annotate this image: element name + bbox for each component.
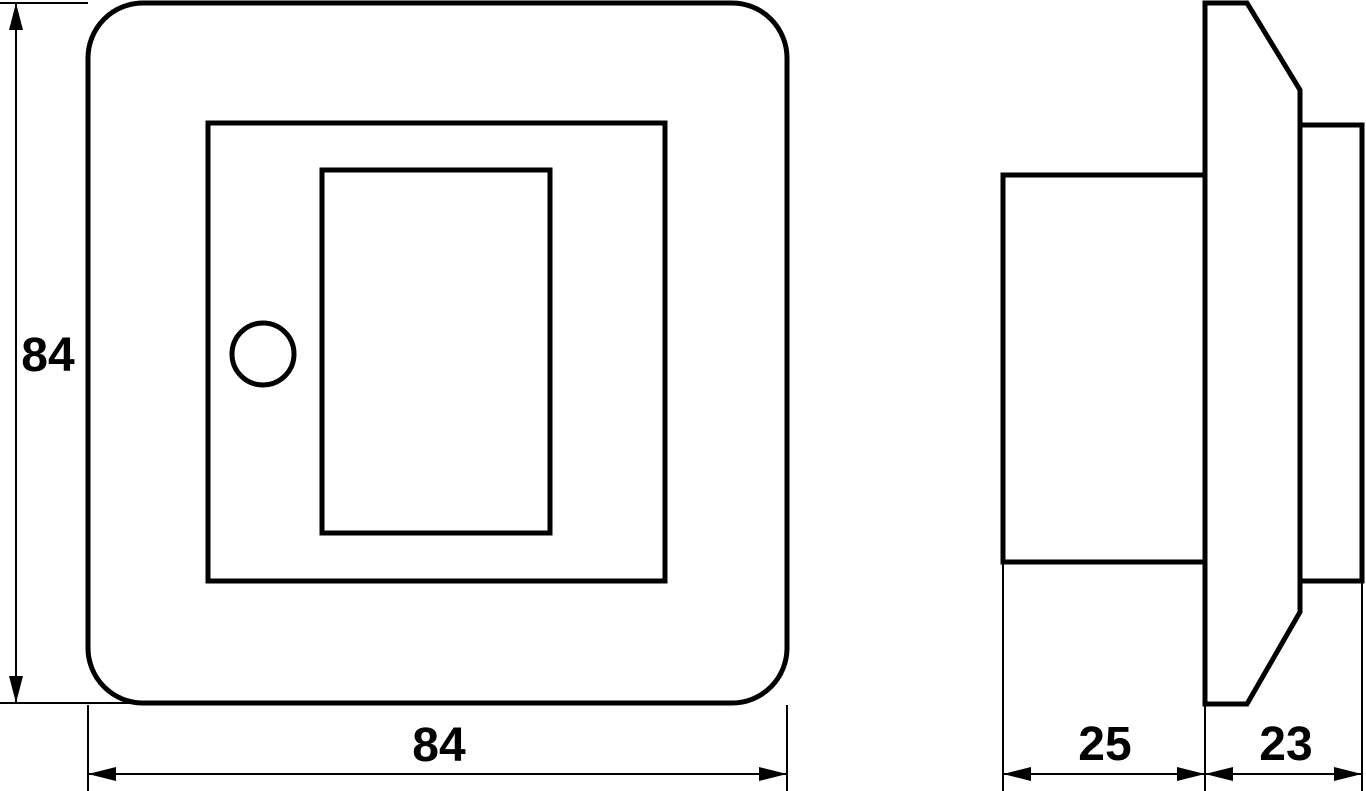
dimension-label-front-height: 84	[21, 329, 75, 382]
dimension-label-front-width: 84	[412, 719, 466, 772]
front-indicator-hole	[232, 323, 294, 385]
technical-drawing-page: 84 84 25 23	[0, 0, 1366, 791]
side-front-box	[1300, 125, 1362, 581]
side-mounting-body	[1003, 175, 1205, 562]
front-view	[88, 3, 787, 703]
dimension-label-rear-depth: 25	[1078, 718, 1131, 771]
front-inner-window	[322, 170, 550, 533]
dimension-label-front-depth: 23	[1259, 718, 1312, 771]
technical-drawing-canvas: 84 84 25 23	[0, 0, 1366, 791]
side-faceplate-profile	[1205, 3, 1300, 704]
